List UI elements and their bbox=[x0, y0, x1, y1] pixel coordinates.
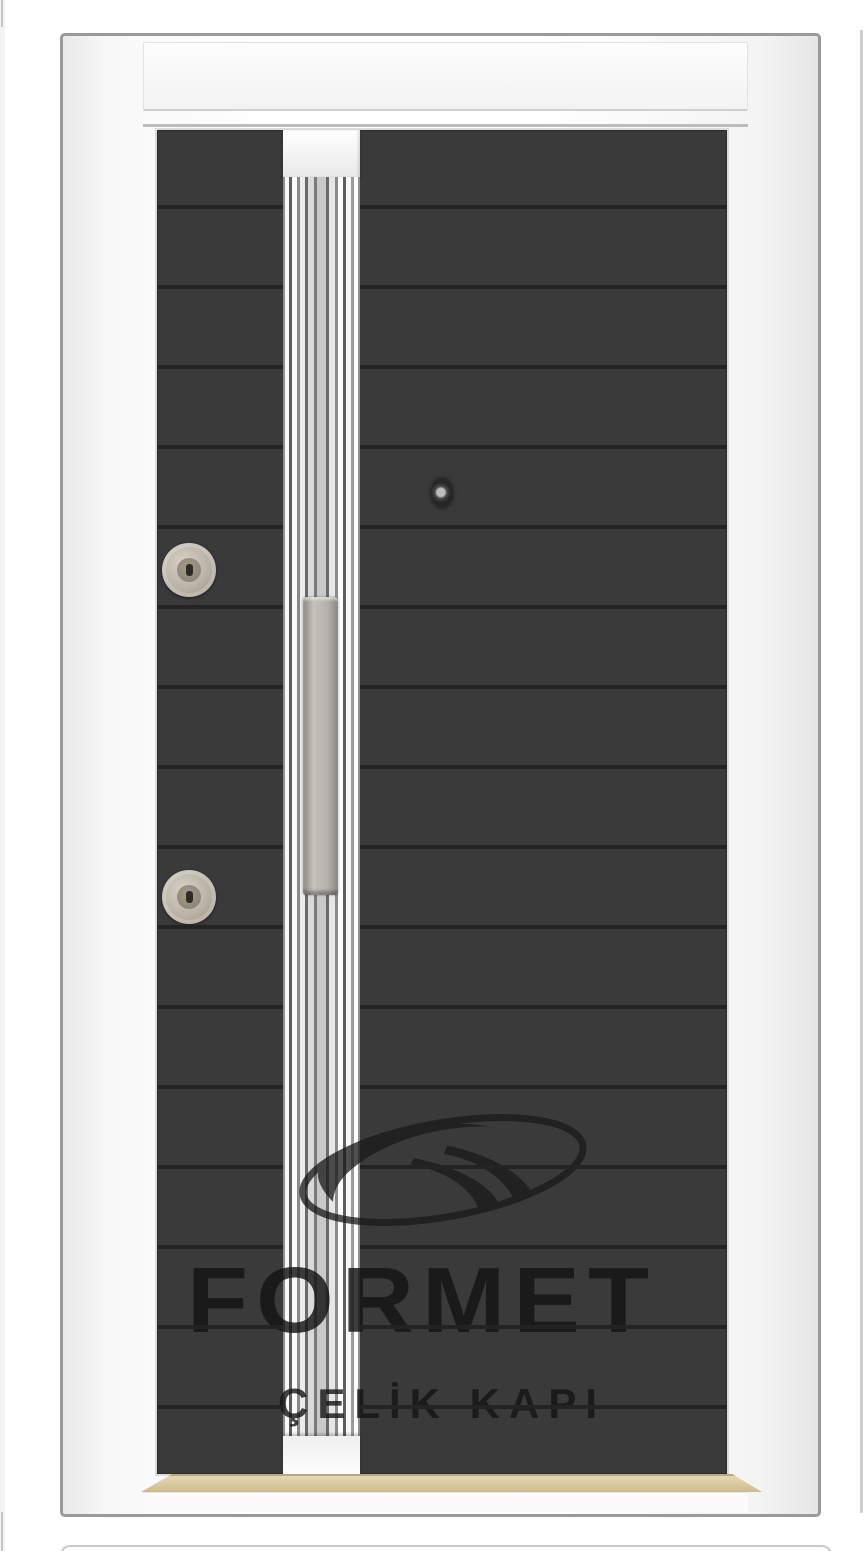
lower-keyhole-icon bbox=[186, 891, 193, 903]
door-handle-bar bbox=[303, 597, 338, 895]
page-left-gutter bbox=[0, 0, 5, 1551]
upper-lock-cylinder bbox=[162, 543, 216, 597]
adjacent-card-left-edge-top[interactable] bbox=[1, 0, 3, 27]
door-sill bbox=[143, 1492, 748, 1512]
trim-strip-bottom-cap bbox=[283, 1436, 360, 1476]
adjacent-card-left-edge-bottom[interactable] bbox=[1, 1512, 3, 1551]
upper-lock-core bbox=[177, 558, 201, 582]
door-transom-panel bbox=[143, 42, 748, 111]
frame-rail-line bbox=[143, 124, 748, 127]
lower-lock-core bbox=[177, 885, 201, 909]
next-product-card-below[interactable] bbox=[60, 1545, 832, 1551]
trim-strip-top-cap bbox=[283, 130, 360, 177]
lower-lock-cylinder bbox=[162, 870, 216, 924]
door-leaf-panel bbox=[157, 130, 727, 1474]
door-threshold bbox=[141, 1474, 762, 1492]
upper-keyhole-icon bbox=[186, 564, 193, 576]
peephole-viewer bbox=[431, 478, 453, 508]
adjacent-card-right-edge[interactable] bbox=[860, 30, 863, 1513]
product-photo-door[interactable]: FORMET ÇELİK KAPI bbox=[60, 33, 821, 1517]
